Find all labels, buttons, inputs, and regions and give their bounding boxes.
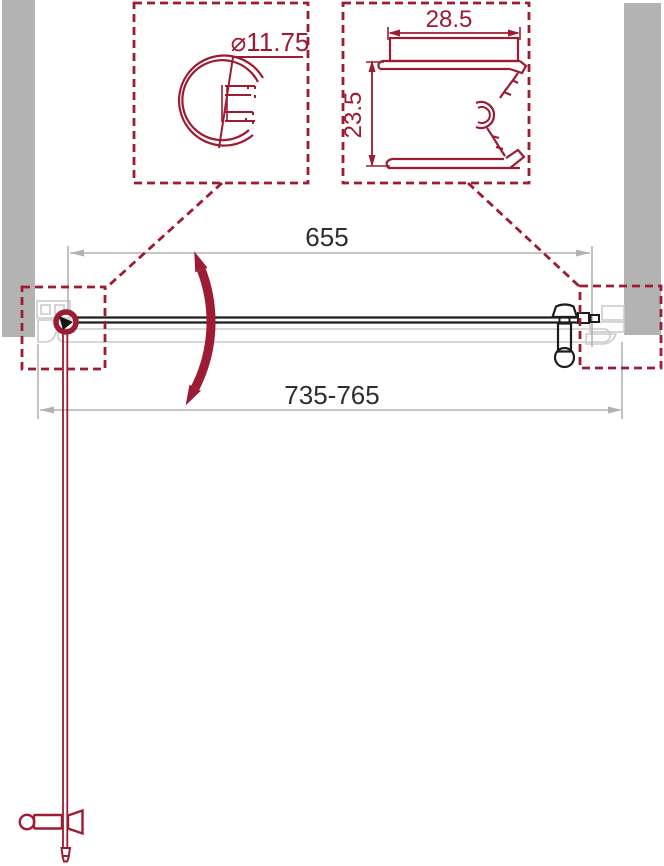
arrow-right-icon bbox=[576, 250, 590, 257]
door-seal-ghost-outline bbox=[58, 329, 610, 342]
diameter-leader-line bbox=[219, 57, 233, 148]
handle-knob-head bbox=[68, 811, 83, 834]
door-open-plan bbox=[20, 312, 83, 862]
adjustment-range-label: 735-765 bbox=[284, 380, 379, 410]
ext-lines-23-5 bbox=[366, 62, 390, 166]
arrow-left-icon bbox=[388, 30, 400, 37]
profile-lower-tongue bbox=[225, 112, 255, 124]
profile-top-flange bbox=[378, 61, 526, 73]
handle-body bbox=[34, 815, 62, 829]
knob-head bbox=[553, 305, 578, 318]
profile-wall-plate bbox=[390, 38, 518, 61]
arrow-right-icon bbox=[608, 407, 622, 414]
knob-diameter-label: ⌀11.75 bbox=[231, 27, 310, 57]
shower-door-diagram: 655 735-765 ⌀11.75 bbox=[0, 0, 664, 866]
right-wall-profile-ghost bbox=[602, 306, 624, 320]
arrow-left-icon bbox=[40, 407, 54, 414]
left-profile-slot bbox=[41, 305, 50, 314]
door-closed-plan bbox=[76, 305, 599, 368]
profile-lower-serration bbox=[487, 128, 505, 156]
profile-inner-arc bbox=[182, 60, 258, 140]
profile-depth-label: 23.5 bbox=[340, 92, 367, 139]
main-dimensions: 655 735-765 bbox=[38, 222, 622, 419]
arrow-left-icon bbox=[70, 250, 84, 257]
door-bottom-end-cap bbox=[62, 848, 71, 862]
arrow-right-icon bbox=[508, 30, 520, 37]
screw-channel-inner bbox=[478, 107, 490, 123]
left-wall bbox=[2, 0, 35, 337]
screw-channel-outer bbox=[476, 102, 494, 128]
handle-grip bbox=[20, 815, 34, 829]
profile-upper-serration bbox=[500, 73, 518, 98]
profile-width-label: 28.5 bbox=[426, 6, 473, 33]
glass-width-label: 655 bbox=[305, 222, 348, 252]
wall-profile-detail: 28.5 23.5 bbox=[340, 6, 526, 168]
technical-drawing-canvas: 655 735-765 ⌀11.75 bbox=[0, 0, 664, 866]
knob-profile-detail: ⌀11.75 bbox=[179, 27, 309, 148]
leader-line-right bbox=[468, 183, 580, 287]
right-wall bbox=[624, 3, 661, 335]
profile-upper-tongue bbox=[225, 86, 255, 98]
